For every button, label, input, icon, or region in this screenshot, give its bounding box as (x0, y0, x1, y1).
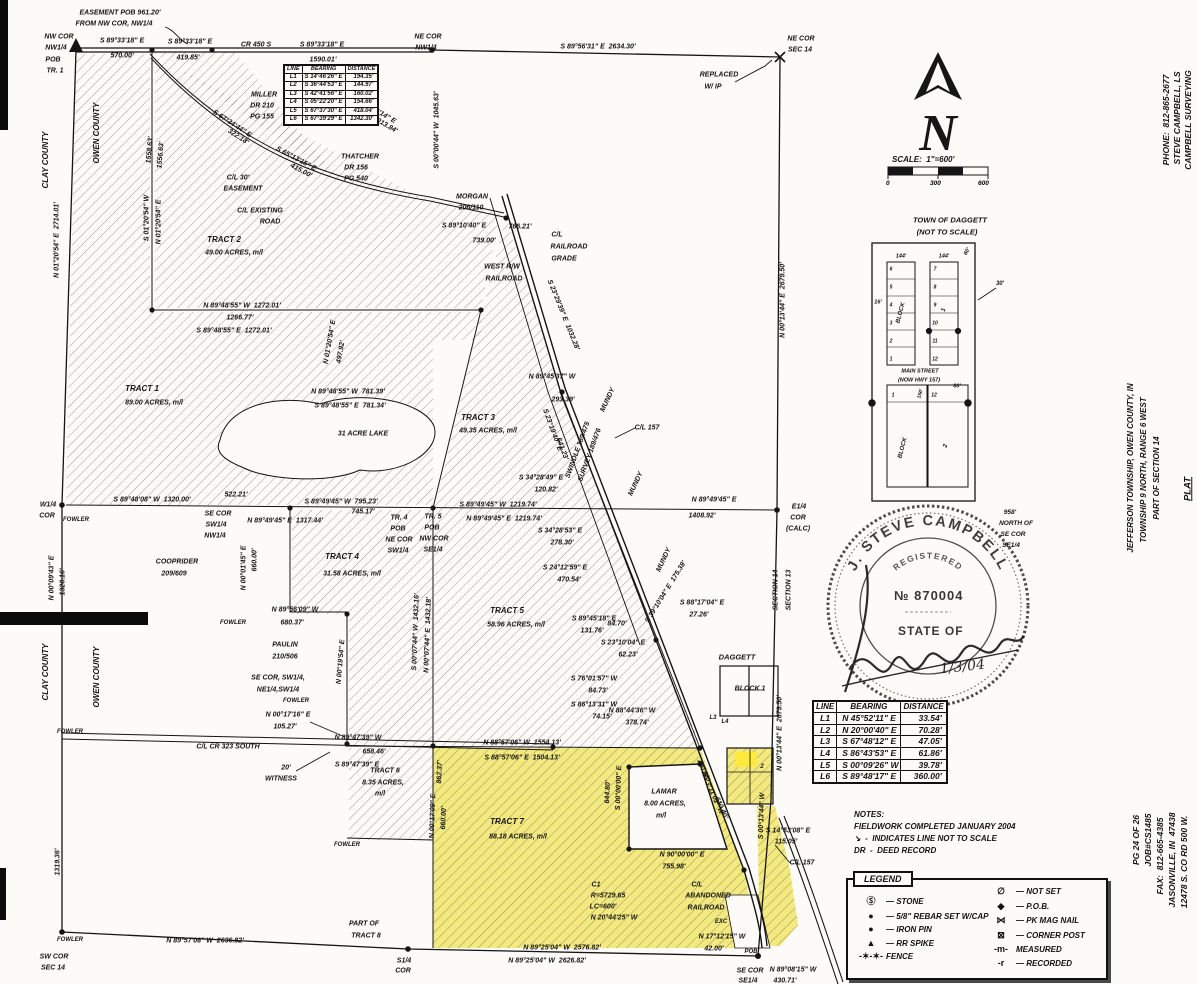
map-label: 766.21' (508, 224, 531, 231)
map-label: S 23°10'04" E (601, 640, 645, 647)
map-label: N 89°49'45" E (692, 497, 737, 504)
scale-tick-300: 300 (930, 180, 941, 187)
map-label: C/L (691, 882, 702, 889)
map-label: RAILROAD (486, 276, 523, 283)
legend-label: — STONE (886, 897, 924, 906)
map-label: 105.27' (273, 724, 296, 731)
map-label: FOWLER (63, 517, 89, 523)
map-label: SE COR (205, 511, 232, 518)
map-label: N 89°49'45" E 1219.74' (466, 516, 542, 523)
rr-spike-icon: ▲ (856, 938, 886, 948)
legend-item: ∅— NOT SET (986, 886, 1085, 897)
surveyor-seal: J. STEVE CAMPBELL REGISTERED (828, 506, 1028, 706)
map-label: S 00°00'44" W 1045.63' (434, 91, 441, 168)
map-label: N 00°13'44" E 2679.50' (777, 695, 784, 771)
map-label: PG 24 OF 26 (1132, 815, 1141, 865)
map-label: TR. 1 (46, 68, 63, 75)
map-label: N 90°00'00" E (660, 852, 705, 859)
plat-sheet: N J. STEVE CAMPBELL REGISTERED EASEMENT … (0, 0, 1197, 984)
map-label: 42.00' (704, 946, 723, 953)
scale-tick-600: 600 (978, 180, 989, 187)
map-label: 120.82' (534, 487, 557, 494)
legend-label: — RECORDED (1016, 959, 1072, 968)
map-label: CR 450 S (241, 42, 271, 49)
map-label: (NOT TO SCALE) (917, 228, 978, 236)
map-label: N 89°25'04" W 2626.82' (508, 958, 586, 965)
plat-drawing: N J. STEVE CAMPBELL REGISTERED (0, 0, 1197, 984)
map-label: S 34°28'53" E (538, 528, 582, 535)
legend-label: FENCE (886, 952, 913, 961)
notes-block: NOTES:FIELDWORK COMPLETED JANUARY 2004↘ … (854, 810, 1016, 855)
map-label: N 01°20'54" E (156, 200, 163, 245)
map-label: 658.46' (362, 749, 385, 756)
map-label: TR. 4 (390, 515, 407, 522)
map-label: S 89°48'55" E 1272.01' (196, 328, 271, 335)
tract-6-label: TRACT 6 (370, 768, 400, 775)
map-label: 958' (1004, 510, 1016, 517)
map-label: 12 (932, 358, 938, 363)
map-label: 62.23' (618, 652, 637, 659)
scale-tick-0: 0 (886, 180, 890, 187)
note-line: FIELDWORK COMPLETED JANUARY 2004 (854, 822, 1016, 831)
map-label: S 76°01'57" W (571, 676, 617, 683)
map-label: 7 (934, 268, 937, 273)
pk-mag-nail-icon: ⋈ (986, 915, 1016, 926)
legend-left-column: Ⓢ— STONE●— 5/8" REBAR SET W/CAP●— IRON P… (856, 894, 988, 962)
map-label: 1 (890, 358, 893, 363)
map-label: FOWLER (220, 620, 246, 626)
map-label: TOWNSHIP 9 NORTH, RANGE 6 WEST (1140, 397, 1148, 542)
map-label: 49.00 ACRES, m/l (205, 250, 263, 257)
map-label: 1320.16' (60, 569, 67, 596)
table-row: L3S 42°41'56" E160.02' (284, 90, 378, 99)
map-label: FOWLER (334, 842, 360, 848)
map-label: S 88°57'06" E 1504.13' (484, 755, 559, 762)
map-label: SE COR, SW1/4, (251, 675, 305, 682)
map-label: NE COR (385, 537, 412, 544)
map-label: N 89°45'37" W (529, 374, 576, 381)
map-label: C/L CR 323 SOUTH (196, 744, 259, 751)
map-label: SW COR (40, 954, 69, 961)
map-label: 89.00 ACRES, m/l (125, 400, 183, 407)
map-label: S 89°48'08" W 1320.00' (113, 497, 190, 504)
map-label: MILLER (251, 92, 277, 99)
map-label: MAIN STREET (901, 369, 938, 375)
map-label: LC=600' (590, 904, 617, 911)
map-label: (CALC) (786, 526, 810, 533)
map-label: PG 155 (250, 114, 274, 121)
map-label: POB (424, 525, 439, 532)
map-label: 745.17' (351, 509, 374, 516)
col-header: DISTANCE (901, 701, 947, 713)
map-label: 755.98' (662, 864, 685, 871)
fence-icon: -✶-✶- (856, 951, 886, 962)
scale-bar (888, 167, 988, 179)
map-label: S1/4 (397, 958, 411, 965)
map-label: 10 (932, 322, 938, 327)
map-label: PART OF SECTION 14 (1153, 436, 1161, 519)
lower-line-table: LINEBEARINGDISTANCEL1N 45°52'11" E33.54'… (812, 700, 948, 784)
map-label: C/L EXISTING (237, 208, 283, 215)
map-label: SW1/4 (387, 548, 408, 555)
map-label: REPLACED (700, 72, 739, 79)
legend-label: MEASURED (1016, 945, 1062, 954)
table-row: L5S 00°09'26" W39.78' (813, 759, 947, 771)
map-label: C/L (551, 232, 562, 239)
map-label: WEST R/W (484, 264, 520, 271)
legend-item: ▲— RR SPIKE (856, 938, 988, 948)
map-label: GRADE (551, 256, 576, 263)
surveyor-name: CAMPBELL SURVEYING (1184, 70, 1193, 170)
table-row: L4S 86°43'53" E61.86' (813, 747, 947, 759)
map-label: N 89°25'04" W 2576.82' (523, 945, 601, 952)
map-label: 4 (890, 304, 893, 309)
table-row: L6S 67°39'29" E1342.30' (284, 116, 378, 125)
map-label: 84.70' (607, 621, 626, 628)
table-row: L5S 67°37'30" E418.04' (284, 107, 378, 116)
map-label: NW1/4 (204, 533, 225, 540)
map-label: S 89°49'45" W 1219.74' (459, 502, 536, 509)
map-label: SECTION 14 (773, 570, 780, 611)
note-line: NOTES: (854, 810, 1016, 819)
legend-label: — 5/8" REBAR SET W/CAP (886, 912, 988, 921)
table-row: L2S 36°44'53" E144.97' (284, 82, 378, 91)
map-label: 9 (934, 304, 937, 309)
map-label: 210/506 (272, 654, 297, 661)
map-label: 8.35 ACRES, (362, 780, 404, 787)
map-label: PHONE: 812-865-2677 (1162, 75, 1171, 166)
map-label: 570.00' (110, 53, 133, 60)
map-label: 862.37' (436, 760, 444, 783)
col-header: LINE (813, 701, 837, 713)
map-label: 88.18 ACRES, m/l (489, 834, 547, 841)
legend-label: — NOT SET (1016, 887, 1061, 896)
map-label: N 88°57'06" W 1554.13' (483, 740, 561, 747)
map-label: POB (390, 526, 405, 533)
map-label: 20' (281, 765, 290, 772)
map-label: PAULIN (272, 642, 298, 649)
note-line: ↘ - INDICATES LINE NOT TO SCALE (854, 834, 1016, 843)
map-label: 12478 S. CO RD 500 W. (1180, 816, 1189, 908)
legend-item: ●— IRON PIN (856, 924, 988, 934)
map-label: 1266.77' (227, 315, 254, 322)
map-label: 206/110 (459, 205, 484, 212)
map-label: JASONVILLE, IN 47438 (1168, 813, 1177, 908)
map-label: 419.85' (176, 55, 199, 62)
map-label: 131.76' (580, 628, 603, 635)
note-line: DR - DEED RECORD (854, 846, 1016, 855)
owen-county-label: OWEN COUNTY (93, 103, 101, 164)
map-label: N 89°56'09" W (272, 607, 319, 614)
north-letter: N (918, 105, 959, 162)
map-label: W/ IP (704, 84, 721, 91)
map-label: 5 (890, 286, 893, 291)
map-label: SE1/4 (423, 547, 442, 554)
map-label: 58.96 ACRES, m/l (487, 622, 545, 629)
map-label: E1/4 (792, 504, 806, 511)
map-label: POB (744, 949, 757, 955)
inset-title: TOWN OF DAGGETT (913, 216, 987, 224)
map-label: SEC 14 (41, 965, 65, 972)
map-label: 74.15' (592, 714, 611, 721)
map-label: W1/4 (40, 502, 56, 509)
legend-label: — P.O.B. (1016, 902, 1049, 911)
map-label: S 34°28'49" E (519, 475, 563, 482)
map-label: S 89°10'40" E (442, 223, 486, 230)
map-label: 144' (939, 254, 949, 260)
scale-label: SCALE: 1"=600' (892, 155, 954, 164)
seal-number: № 870004 (894, 589, 963, 602)
table-row: L4S 05°22'20" E154.66' (284, 99, 378, 108)
north-arrow: N (914, 52, 962, 162)
map-label: JOB#CS1485 (1144, 814, 1153, 867)
map-label: N 01°20'54" E 2714.01' (54, 202, 61, 278)
map-label: R=5729.65 (591, 893, 625, 900)
map-label: WITNESS (265, 776, 297, 783)
legend: LEGEND Ⓢ— STONE●— 5/8" REBAR SET W/CAP●—… (846, 878, 1108, 980)
map-label: BLOCK 1 (735, 686, 766, 693)
map-label: COOPRIDER (156, 559, 198, 566)
plat-title: PLAT (1183, 477, 1193, 501)
map-label: DR 156 (344, 165, 368, 172)
map-label: S 24°12'59" E (543, 565, 587, 572)
map-label: S 89°56'31" E 2634.30' (560, 44, 635, 51)
legend-item: ⊠— CORNER POST (986, 930, 1085, 941)
tract-7-label: TRACT 7 (490, 818, 524, 826)
map-label: 1 (892, 394, 895, 399)
clay-county-label: CLAY COUNTY (42, 131, 50, 188)
map-label: ABANDONED (685, 893, 731, 900)
not-set-icon: ∅ (986, 886, 1016, 897)
seal-registered: REGISTERED (891, 550, 965, 572)
map-label: 11 (932, 340, 937, 345)
map-label: N 89°48'55" W 1272.01' (203, 303, 281, 310)
legend-item: -r— RECORDED (986, 958, 1085, 968)
map-label: 680.37' (280, 620, 303, 627)
tract-8-label: TRACT 8 (351, 933, 381, 940)
map-label: POB (45, 57, 60, 64)
map-label: C/L 157 (790, 860, 815, 867)
map-label: C1 (592, 882, 601, 889)
map-label: DR 210 (250, 103, 274, 110)
lamar-label: LAMAR (651, 789, 676, 796)
measured-icon: -m- (986, 944, 1016, 954)
map-label: THATCHER (341, 154, 379, 161)
map-label: 1319.36' (55, 849, 62, 876)
map-label: N 00°09'43" E (49, 556, 56, 601)
map-label: PART OF (349, 921, 379, 928)
map-label: 31.58 ACRES, m/l (323, 571, 381, 578)
map-label: 2 (890, 340, 893, 345)
map-label: FOWLER (57, 937, 83, 943)
map-label: S 88°17'04" E (680, 600, 724, 607)
map-label: EXC (715, 919, 727, 925)
map-label: (NOW HWY 157) (898, 378, 940, 384)
legend-right-column: ∅— NOT SET◆— P.O.B.⋈— PK MAG NAIL⊠— CORN… (986, 886, 1085, 968)
map-label: 8.00 ACRES, (644, 801, 686, 808)
map-label: FAX: 812-665-4385 (1156, 817, 1165, 894)
svg-text:REGISTERED: REGISTERED (891, 550, 965, 572)
map-label: N 89°48'55" W 781.39' (311, 389, 385, 396)
map-label: L4 (721, 719, 728, 725)
map-label: 6 (890, 268, 893, 273)
seal-name: J. STEVE CAMPBELL (845, 513, 1012, 574)
map-label: COR (39, 513, 55, 520)
map-label: NORTH OF (999, 521, 1033, 528)
legend-item: -✶-✶-FENCE (856, 951, 988, 962)
map-label: S 89°33'18" E (300, 42, 344, 49)
col-header: BEARING (302, 65, 345, 73)
map-label: ROAD (260, 219, 281, 226)
map-label: 12 (931, 394, 937, 399)
map-label: N 89°49'45" E 1317.44' (247, 518, 323, 525)
map-label: C/L 30' (227, 175, 250, 182)
map-label: S 01°20'54" W (144, 195, 151, 241)
map-label: N 00°17'16" E (266, 712, 311, 719)
map-label: NW COR (419, 536, 448, 543)
table-row: L2N 20°00'40" E70.28' (813, 724, 947, 736)
tract-1-label: TRACT 1 (125, 385, 159, 393)
map-label: S 89°33'18" E (168, 39, 212, 46)
map-label: COR (395, 968, 411, 975)
seal-state: STATE OF (898, 625, 964, 637)
map-label: N 00°01'45" E (241, 546, 248, 591)
legend-label: — PK MAG NAIL (1016, 916, 1079, 925)
map-label: C/L 157 (635, 425, 660, 432)
map-label: L3 (709, 715, 716, 721)
map-label: FROM NW COR, NW1/4 (76, 21, 153, 28)
map-label: N 20°44'25" W (591, 915, 638, 922)
table-row: L1N 45°52'11" E33.54' (813, 713, 947, 725)
map-label: 1590.01' (310, 57, 337, 64)
map-label: N 00°13'44" E 2679.50' (780, 262, 787, 338)
map-label: STEVE CAMPBELL, LS (1173, 71, 1182, 164)
table-row: L3S 67°48'12" E47.05' (813, 736, 947, 748)
map-label: 644.80' (604, 780, 612, 803)
col-header: DISTANCE (345, 65, 378, 73)
map-label: N 17°12'15" W (699, 934, 746, 941)
map-label: SE1/4 (1002, 543, 1020, 550)
map-label: S 89°33'18" E (100, 38, 144, 45)
map-label: 430.71' (773, 978, 796, 984)
map-label: 522.21' (224, 492, 247, 499)
map-label: NW1/4 (415, 45, 436, 52)
iron-pin-icon: ● (856, 924, 886, 934)
map-label: FOWLER (57, 729, 83, 735)
map-label: 470.54' (557, 577, 580, 584)
legend-item: ◆— P.O.B. (986, 901, 1085, 912)
legend-item: Ⓢ— STONE (856, 894, 988, 907)
map-label: 16' (874, 300, 881, 306)
map-label: 1408.92' (689, 513, 716, 520)
tract-4-label: TRACT 4 (325, 553, 359, 561)
map-label: S 89°47'39" E (335, 762, 379, 769)
map-label: 8 (934, 286, 937, 291)
legend-label: — IRON PIN (886, 925, 932, 934)
map-label: 30' (996, 281, 1004, 287)
legend-label: — RR SPIKE (886, 939, 934, 948)
map-label: S 89°48'55" E 781.34' (314, 403, 385, 410)
map-label: NE COR (787, 36, 814, 43)
map-label: S 89°49'45" W 795.23' (304, 499, 377, 506)
map-label: 49.35 ACRES, m/l (459, 428, 517, 435)
tract-2-label: TRACT 2 (207, 236, 241, 244)
map-label: 60' (953, 384, 960, 390)
map-label: 2 (760, 764, 763, 770)
map-label: OWEN COUNTY (93, 647, 101, 708)
map-label: SECTION 13 (786, 570, 793, 611)
map-label: PG 540 (344, 176, 368, 183)
map-label: 144' (896, 254, 906, 260)
lake-label: 31 ACRE LAKE (338, 431, 388, 438)
tract-3-label: TRACT 3 (461, 414, 495, 422)
map-label: SE1/4 (738, 978, 757, 984)
map-label: SE COR (1001, 532, 1026, 539)
map-label: CLAY COUNTY (42, 643, 50, 700)
pob-icon: ◆ (986, 901, 1016, 912)
upper-line-table: LINEBEARINGDISTANCEL1S 14°46'26" E194.35… (283, 64, 379, 126)
legend-title: LEGEND (853, 871, 913, 887)
map-label: 660.00' (252, 548, 259, 571)
legend-label: — CORNER POST (1016, 931, 1085, 940)
rebar-icon: ● (856, 911, 886, 921)
map-label: SW1/4 (205, 522, 226, 529)
col-header: LINE (284, 65, 302, 73)
map-label: NE1/4,SW1/4 (257, 687, 299, 694)
map-label: m/l (375, 791, 385, 798)
map-label: 293.39' (551, 397, 574, 404)
map-label: 209/609 (161, 571, 186, 578)
map-label: FOWLER (283, 698, 309, 704)
map-label: 278.30' (550, 540, 573, 547)
map-label: 84.73' (588, 688, 607, 695)
map-label: RAILROAD (688, 905, 725, 912)
map-label: NW COR (44, 34, 73, 41)
daggett-label: DAGGETT (719, 653, 756, 661)
stone-icon: Ⓢ (856, 894, 886, 907)
corner-post-icon: ⊠ (986, 930, 1016, 941)
map-label: N 89°08'15" W (770, 967, 817, 974)
map-label: 660.00' (440, 806, 448, 829)
map-label: 739.00' (472, 238, 495, 245)
tract-5-label: TRACT 5 (490, 607, 524, 615)
map-label: 27.26' (689, 612, 708, 619)
map-label: JEFFERSON TOWNSHIP, OWEN COUNTY, IN (1127, 383, 1135, 552)
map-label: 378.74' (625, 720, 648, 727)
map-label: 3 (890, 322, 893, 327)
map-label: SE COR (737, 968, 764, 975)
map-label: 115.05' (775, 839, 798, 846)
table-row: L1S 14°46'26" E194.35' (284, 73, 378, 82)
svg-text:J. STEVE CAMPBELL: J. STEVE CAMPBELL (845, 513, 1012, 574)
map-label: m/l (656, 813, 666, 820)
col-header: BEARING (837, 701, 901, 713)
map-label: TR. 5 (424, 514, 441, 521)
map-label: RAILROAD (551, 244, 588, 251)
map-label: EASEMENT POB 961.20' (79, 10, 160, 17)
map-label: SEC 14 (788, 47, 812, 54)
map-label: NW1/4 (45, 45, 66, 52)
map-label: NE COR (414, 34, 441, 41)
map-label: N 88°44'36" W (609, 708, 656, 715)
legend-item: ●— 5/8" REBAR SET W/CAP (856, 911, 988, 921)
map-label: N 89°47'39" W (335, 735, 382, 742)
legend-item: ⋈— PK MAG NAIL (986, 915, 1085, 926)
map-label: MORGAN (456, 194, 488, 201)
map-label: COR (790, 515, 806, 522)
legend-item: -m-MEASURED (986, 944, 1085, 954)
table-row: L6S 89°48'17" E360.00' (813, 771, 947, 783)
